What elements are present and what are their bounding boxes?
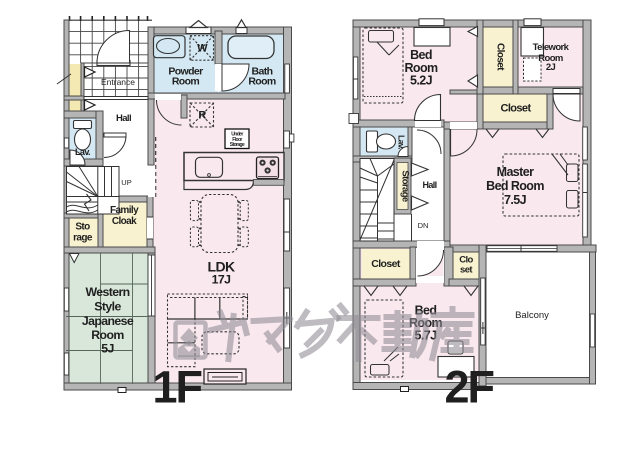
svg-text:Bed: Bed — [410, 48, 432, 62]
svg-text:Room: Room — [91, 328, 124, 342]
svg-text:W: W — [197, 43, 208, 55]
svg-text:Hall: Hall — [422, 180, 436, 190]
svg-text:Balcony: Balcony — [515, 310, 549, 321]
svg-text:Storage: Storage — [400, 170, 411, 201]
svg-text:Room: Room — [248, 76, 276, 88]
svg-text:7.5J: 7.5J — [504, 193, 527, 207]
svg-text:Family: Family — [110, 205, 139, 216]
svg-text:Master: Master — [497, 165, 534, 179]
svg-text:Style: Style — [94, 300, 121, 314]
svg-text:Hall: Hall — [116, 113, 131, 124]
svg-text:UP: UP — [121, 178, 131, 187]
svg-text:Sto: Sto — [75, 222, 90, 233]
svg-text:Closet: Closet — [495, 43, 506, 71]
svg-text:2J: 2J — [546, 62, 556, 73]
svg-text:Entrance: Entrance — [101, 77, 135, 87]
svg-text:2F: 2F — [445, 362, 494, 413]
svg-text:5J: 5J — [101, 342, 113, 356]
svg-text:rage: rage — [73, 233, 93, 244]
svg-text:R: R — [198, 110, 206, 122]
svg-text:Japanese: Japanese — [82, 314, 134, 328]
svg-text:1F: 1F — [153, 362, 202, 413]
svg-text:17J: 17J — [212, 273, 231, 287]
svg-text:5.2J: 5.2J — [410, 74, 433, 88]
svg-text:Lav.: Lav. — [397, 135, 407, 149]
svg-text:Western: Western — [85, 285, 129, 299]
svg-text:Lav.: Lav. — [75, 147, 90, 157]
svg-text:Room: Room — [172, 76, 200, 88]
svg-text:Closet: Closet — [500, 103, 531, 115]
svg-text:Telework: Telework — [533, 42, 570, 53]
svg-text:Bed Room: Bed Room — [486, 179, 544, 193]
svg-text:set: set — [460, 265, 473, 276]
svg-text:Closet: Closet — [371, 258, 401, 270]
svg-text:Storage: Storage — [230, 142, 245, 148]
svg-text:Cloak: Cloak — [112, 216, 137, 227]
svg-text:DN: DN — [418, 221, 429, 230]
